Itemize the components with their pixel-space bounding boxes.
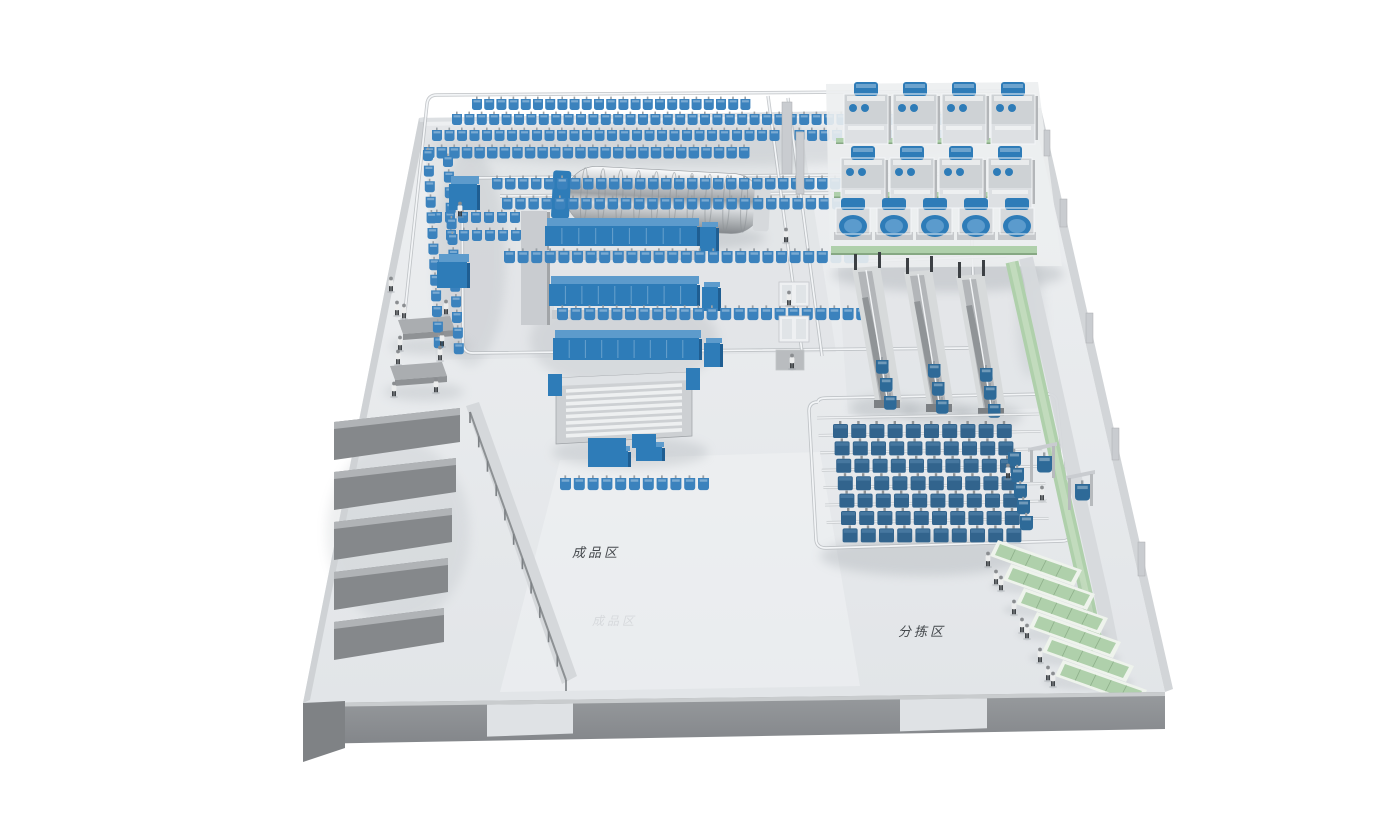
person-head: [438, 346, 442, 350]
bag-highlight: [702, 115, 709, 117]
bag-highlight: [821, 131, 828, 133]
bag-highlight: [461, 231, 468, 233]
storage-bag-top: [961, 425, 974, 428]
bag-hanger: [568, 112, 570, 115]
storage-bag-top: [857, 477, 870, 480]
bag-hanger: [536, 128, 538, 131]
press-drum-inner: [967, 219, 985, 233]
bag-hanger: [1012, 525, 1014, 528]
bag-highlight: [596, 199, 603, 201]
bag-highlight: [617, 479, 625, 481]
bag-highlight: [831, 309, 839, 311]
bag-hanger: [699, 248, 701, 251]
storage-bag-top: [844, 529, 857, 532]
bag-highlight: [642, 252, 650, 254]
bag-highlight: [819, 179, 826, 181]
storage-bag-top: [986, 495, 999, 498]
bag-hanger: [877, 438, 879, 441]
storage-bag-top: [834, 425, 847, 428]
bag-hanger: [605, 112, 607, 115]
bag-hanger: [617, 144, 619, 147]
bag-highlight: [540, 115, 547, 117]
person-legs: [446, 309, 448, 315]
bag-hanger: [938, 508, 940, 511]
bag-hanger: [976, 525, 978, 528]
bag-hanger: [875, 421, 877, 424]
bag-hanger: [756, 175, 758, 178]
bag-hanger: [431, 210, 433, 213]
bag-hanger: [680, 144, 682, 147]
bag-hanger: [697, 305, 699, 308]
person-legs: [999, 585, 1001, 591]
bag-hanger: [438, 335, 440, 338]
bag-highlight: [425, 167, 432, 169]
bag-hanger: [862, 473, 864, 476]
bag-hanger: [865, 508, 867, 511]
bag-hanger: [429, 179, 431, 182]
storage-bag-top: [913, 495, 926, 498]
person-shadow: [394, 364, 402, 367]
bag-hanger: [941, 397, 943, 400]
bag-hanger: [970, 456, 972, 459]
bag-highlight: [454, 329, 461, 331]
feeder-base-highlight: [897, 126, 933, 130]
bag-highlight: [650, 179, 657, 181]
bag-hanger: [744, 97, 746, 100]
storage-bag-top: [988, 512, 1001, 515]
bag-highlight: [426, 182, 433, 184]
bag-highlight: [572, 309, 580, 311]
bag-hanger: [821, 175, 823, 178]
bag-highlight: [429, 229, 436, 231]
bag-hanger: [554, 144, 556, 147]
monorail-post: [906, 258, 909, 274]
bag-highlight: [878, 362, 887, 365]
person-shadow: [782, 242, 790, 245]
person-torso: [440, 335, 445, 341]
feeder-window: [1008, 104, 1016, 112]
bag-hanger: [711, 128, 713, 131]
storage-bag-top: [880, 529, 893, 532]
press-drum-inner: [844, 219, 862, 233]
bag-highlight: [768, 199, 775, 201]
person-torso: [1006, 467, 1011, 473]
bag-highlight: [754, 199, 761, 201]
feeder-window: [910, 104, 918, 112]
monorail-post: [982, 260, 985, 276]
storage-bag-top: [912, 477, 925, 480]
bag-hanger: [453, 144, 455, 147]
bag-highlight: [474, 231, 481, 233]
bag-hanger: [882, 491, 884, 494]
bag-highlight: [735, 309, 743, 311]
feeder-window: [846, 168, 854, 176]
person-torso: [444, 303, 449, 309]
spreader-post: [686, 368, 700, 390]
person-legs: [444, 309, 446, 315]
bag-hanger: [749, 128, 751, 131]
person-shadow: [432, 392, 440, 395]
person-head: [784, 228, 788, 232]
bag-hanger: [572, 195, 574, 198]
bag-hanger: [731, 144, 733, 147]
bag-highlight: [510, 100, 517, 102]
bag-highlight: [678, 148, 685, 150]
bag-hanger: [820, 305, 822, 308]
person-legs: [988, 561, 990, 567]
bag-highlight: [669, 100, 676, 102]
feeder-window: [959, 104, 967, 112]
bag-highlight: [622, 199, 629, 201]
storage-bag-top: [842, 512, 855, 515]
storage-bag-top: [860, 512, 873, 515]
bag-hanger: [953, 473, 955, 476]
person-legs: [392, 391, 394, 397]
bag-hanger: [740, 248, 742, 251]
person-shadow: [984, 566, 992, 569]
bag-highlight: [690, 148, 697, 150]
bag-hanger: [678, 195, 680, 198]
bag-hanger: [455, 294, 457, 297]
bag-highlight: [776, 309, 784, 311]
feeder-window: [1005, 168, 1013, 176]
bag-hanger: [679, 112, 681, 115]
storage-bag-top: [893, 477, 906, 480]
person-legs: [404, 313, 406, 319]
bag-highlight: [764, 252, 772, 254]
feeder-window: [956, 168, 964, 176]
bag-highlight: [455, 344, 462, 346]
storage-bag-top: [946, 460, 959, 463]
bag-hanger: [564, 475, 566, 478]
person-torso: [1046, 669, 1051, 675]
bag-hanger: [592, 112, 594, 115]
feeder-panel: [942, 160, 980, 165]
bag-highlight: [459, 131, 466, 133]
storage-bag-top: [870, 425, 883, 428]
bag-highlight: [659, 131, 666, 133]
person-shadow: [393, 315, 401, 318]
bag-highlight: [611, 179, 618, 181]
storage-bag-top: [928, 460, 941, 463]
bag-hanger: [548, 175, 550, 178]
bag-highlight: [445, 157, 452, 159]
bag-hanger: [585, 195, 587, 198]
bag-highlight: [739, 115, 746, 117]
bag-highlight: [696, 252, 704, 254]
bag-hanger: [718, 144, 720, 147]
bag-hanger: [536, 248, 538, 251]
bag-highlight: [627, 309, 635, 311]
monorail-post: [878, 252, 881, 268]
bag-hanger: [860, 456, 862, 459]
bag-highlight: [539, 148, 546, 150]
bag-hanger: [642, 144, 644, 147]
feeder-window: [996, 104, 1004, 112]
bag-highlight: [790, 309, 798, 311]
bag-highlight: [471, 131, 478, 133]
person-head: [458, 202, 462, 206]
bag-highlight: [807, 199, 814, 201]
bag-highlight: [498, 100, 505, 102]
bag-highlight: [1022, 518, 1031, 521]
bag-hanger: [1025, 513, 1027, 516]
spreader-output: [632, 434, 656, 448]
bag-hanger: [506, 195, 508, 198]
bag-hanger: [918, 491, 920, 494]
bag-highlight: [817, 309, 825, 311]
bag-hanger: [717, 175, 719, 178]
person-torso: [458, 205, 463, 211]
bag-highlight: [516, 115, 523, 117]
bag-hanger: [575, 305, 577, 308]
bag-hanger: [579, 144, 581, 147]
person-legs: [396, 359, 398, 365]
bag-highlight: [1019, 502, 1028, 505]
feeder-window: [944, 168, 952, 176]
bag-highlight: [700, 479, 708, 481]
bag-highlight: [781, 199, 788, 201]
bag-hanger: [651, 195, 653, 198]
bag-hanger: [504, 144, 506, 147]
bag-hanger: [821, 248, 823, 251]
bag-highlight: [649, 199, 656, 201]
bag-hanger: [616, 305, 618, 308]
bag-highlight: [553, 115, 560, 117]
bag-highlight: [448, 220, 455, 222]
person-shadow: [387, 291, 395, 294]
bag-highlight: [715, 148, 722, 150]
bag-hanger: [912, 421, 914, 424]
bag-hanger: [602, 305, 604, 308]
bag-highlight: [434, 323, 441, 325]
bag-highlight: [570, 199, 577, 201]
bag-highlight: [587, 252, 595, 254]
bag-highlight: [615, 115, 622, 117]
bag-highlight: [801, 115, 808, 117]
bag-hanger: [630, 112, 632, 115]
feeder-panel: [991, 160, 1029, 165]
person-torso: [1025, 627, 1030, 633]
bag-highlight: [794, 199, 801, 201]
bag-highlight: [474, 100, 481, 102]
person-legs: [1020, 627, 1022, 633]
bag-highlight: [620, 100, 627, 102]
bag-hanger: [881, 357, 883, 360]
person-legs: [460, 211, 462, 217]
bag-hanger: [675, 475, 677, 478]
bag-hanger: [590, 248, 592, 251]
person-legs: [395, 310, 397, 316]
bag-hanger: [692, 112, 694, 115]
duct-pillar: [1138, 542, 1145, 576]
bag-hanger: [988, 456, 990, 459]
bag-hanger: [678, 175, 680, 178]
bag-hanger: [674, 128, 676, 131]
bag-highlight: [746, 131, 753, 133]
bag-highlight: [486, 100, 493, 102]
bag-hanger: [699, 128, 701, 131]
person-legs: [436, 387, 438, 393]
bag-highlight: [559, 309, 567, 311]
bag-highlight: [715, 199, 722, 201]
bag-highlight: [627, 115, 634, 117]
bag-hanger: [1004, 438, 1006, 441]
person-torso: [438, 349, 443, 355]
bag-highlight: [533, 179, 540, 181]
person-torso: [1012, 603, 1017, 609]
bag-highlight: [556, 199, 563, 201]
bag-highlight: [559, 100, 566, 102]
bag-highlight: [574, 252, 582, 254]
bag-hanger: [559, 195, 561, 198]
person-head: [1006, 464, 1010, 468]
person-legs: [398, 345, 400, 351]
bag-hanger: [857, 421, 859, 424]
bag-hanger: [642, 112, 644, 115]
storage-bag-top: [915, 512, 928, 515]
bag-hanger: [488, 210, 490, 213]
person-legs: [1042, 495, 1044, 501]
bag-highlight: [609, 199, 616, 201]
bag-hanger: [841, 438, 843, 441]
machine-front: [545, 226, 697, 246]
bag-hanger: [441, 144, 443, 147]
bag-highlight: [644, 100, 651, 102]
bag-hanger: [437, 319, 439, 322]
bag-hanger: [486, 128, 488, 131]
bag-hanger: [716, 112, 718, 115]
storage-bag-top: [836, 442, 849, 445]
bag-highlight: [640, 309, 648, 311]
person-legs: [440, 355, 442, 361]
bag-highlight: [813, 115, 820, 117]
person-shadow: [442, 314, 450, 317]
storage-bag-top: [854, 442, 867, 445]
zone-label-finished-goods: 成品区: [572, 546, 620, 561]
person-legs: [1027, 633, 1029, 639]
bag-highlight: [723, 252, 731, 254]
bag-hanger: [643, 305, 645, 308]
bag-highlight: [741, 179, 748, 181]
bag-hanger: [752, 305, 754, 308]
bag-highlight: [552, 148, 559, 150]
bag-highlight: [844, 309, 852, 311]
bag-highlight: [521, 131, 528, 133]
bag-highlight: [584, 131, 591, 133]
bag-hanger: [574, 175, 576, 178]
person-legs: [1014, 609, 1016, 615]
bag-highlight: [499, 213, 506, 215]
bag-hanger: [794, 248, 796, 251]
feeder-window: [993, 168, 1001, 176]
bag-highlight: [494, 179, 501, 181]
person-shadow: [1038, 500, 1046, 503]
feeder-base-highlight: [894, 190, 930, 194]
feeder-window: [947, 104, 955, 112]
bag-highlight: [624, 179, 631, 181]
feeder-base-highlight: [848, 126, 884, 130]
duct-pillar: [1060, 199, 1067, 227]
bag-hanger: [633, 475, 635, 478]
bag-highlight: [675, 199, 682, 201]
bag-hanger: [824, 128, 826, 131]
storage-bag-top: [855, 460, 868, 463]
bag-hanger: [696, 97, 698, 100]
feeder-base-highlight: [992, 190, 1028, 194]
storage-bag-top: [1006, 512, 1019, 515]
bag-hanger: [724, 128, 726, 131]
person-legs: [789, 300, 791, 306]
storage-bag-top: [862, 529, 875, 532]
person-shadow: [1010, 614, 1018, 617]
storage-bag-top: [984, 477, 997, 480]
bag-hanger: [549, 128, 551, 131]
storage-bag-top: [907, 425, 920, 428]
bag-hanger: [491, 144, 493, 147]
bag-highlight: [434, 307, 441, 309]
storage-bag-top: [966, 477, 979, 480]
bag-highlight: [663, 179, 670, 181]
storage-bag-top: [878, 512, 891, 515]
bag-hanger: [466, 144, 468, 147]
bag-highlight: [721, 131, 728, 133]
person-torso: [389, 280, 394, 286]
feeder-hood-highlight: [954, 84, 974, 88]
bag-highlight: [737, 252, 745, 254]
bag-highlight: [709, 131, 716, 133]
bag-hanger: [1011, 508, 1013, 511]
person-legs: [402, 313, 404, 319]
bag-highlight: [522, 100, 529, 102]
person-head: [392, 382, 396, 386]
bag-highlight: [590, 115, 597, 117]
bag-hanger: [685, 248, 687, 251]
machine-side: [477, 185, 480, 210]
bag-hanger: [991, 491, 993, 494]
bag-hanger: [986, 438, 988, 441]
person-legs: [400, 345, 402, 351]
bag-highlight: [671, 131, 678, 133]
bag-highlight: [491, 115, 498, 117]
bag-hanger: [617, 248, 619, 251]
factory-3d-render: 成品区 成品区 分拣区: [0, 0, 1391, 834]
machine-front: [700, 227, 716, 251]
bag-hanger: [782, 175, 784, 178]
bag-highlight: [686, 479, 694, 481]
person-legs: [986, 561, 988, 567]
bag-hanger: [561, 97, 563, 100]
bag-highlight: [672, 479, 680, 481]
bag-highlight: [562, 479, 570, 481]
machine-side: [467, 263, 470, 288]
bag-highlight: [586, 309, 594, 311]
person-legs: [1001, 585, 1003, 591]
bag-hanger: [731, 195, 733, 198]
person-torso: [1038, 651, 1043, 657]
bag-hanger: [691, 175, 693, 178]
bag-hanger: [600, 175, 602, 178]
bag-highlight: [478, 115, 485, 117]
bag-hanger: [665, 175, 667, 178]
person-legs: [1048, 675, 1050, 681]
bag-highlight: [428, 214, 435, 216]
storage-bag-top: [980, 425, 993, 428]
bag-hanger: [613, 175, 615, 178]
bag-hanger: [592, 475, 594, 478]
bag-highlight: [791, 252, 799, 254]
bag-hanger: [847, 508, 849, 511]
